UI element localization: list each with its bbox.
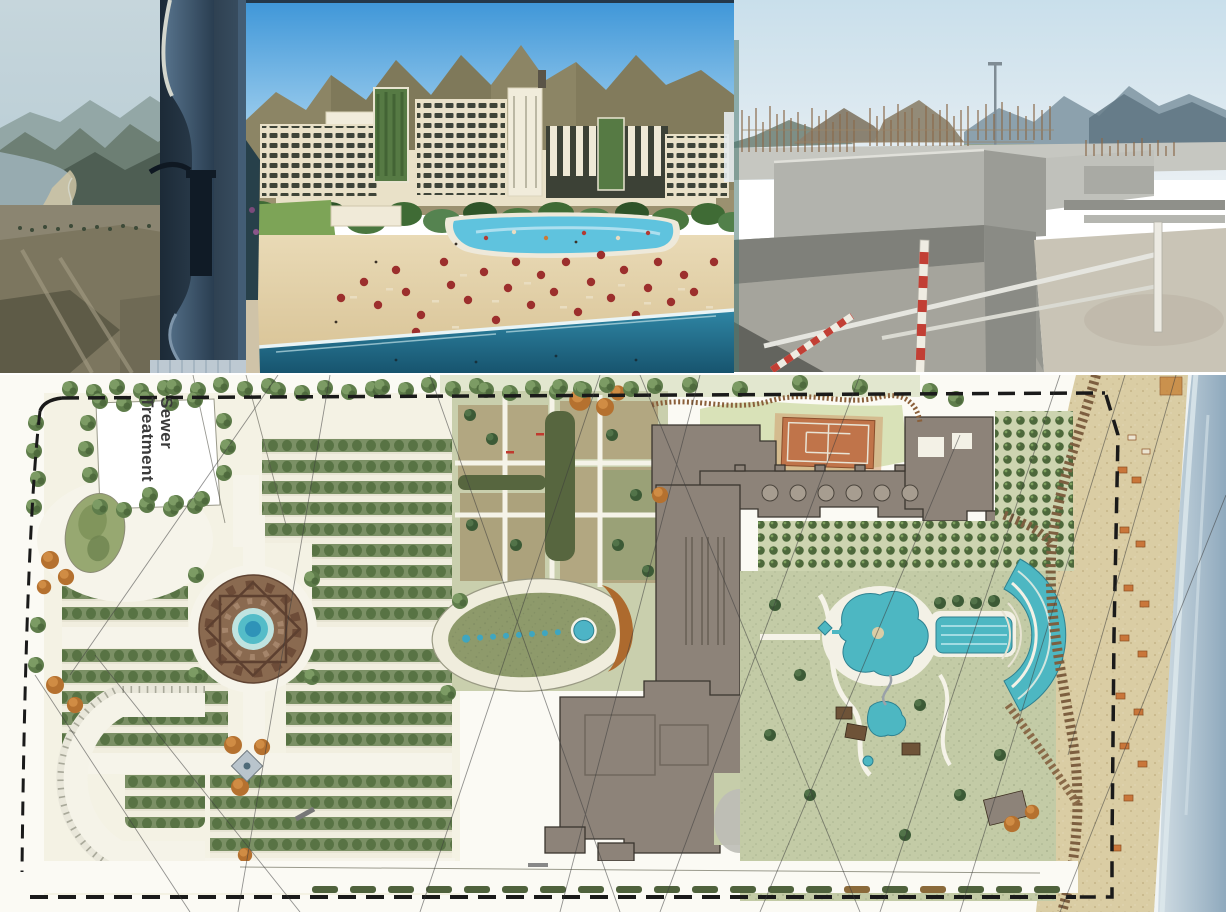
beach-pavilion	[331, 206, 401, 226]
balcony-lamp	[186, 170, 216, 276]
balcony-pillar	[150, 0, 246, 373]
mandala-fountain	[189, 565, 317, 693]
resort-rendering-panel	[246, 0, 734, 373]
resort-pool	[445, 212, 680, 258]
tennis-court	[773, 413, 883, 475]
sewer-treatment-label: Sewer Treatment	[138, 397, 176, 503]
photo-edge-sliver	[734, 40, 739, 372]
construction-photo-panel	[734, 0, 1226, 372]
site-plan-panel: Sewer Treatment	[0, 375, 1226, 912]
collage-canvas: Sewer Treatment	[0, 0, 1226, 912]
coast-photo-panel	[0, 0, 246, 373]
kids-pool	[863, 756, 873, 766]
resort-left-foliage	[246, 140, 260, 373]
